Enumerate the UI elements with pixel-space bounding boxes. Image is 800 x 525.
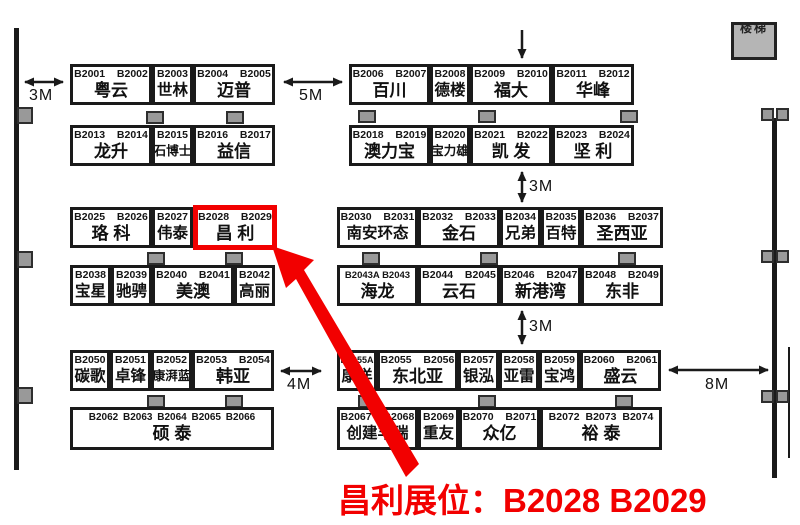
booth-B2043A-B2043: B2043A B2043 海龙 [337,265,418,306]
booth-numbers: B2025 B2026 [74,211,148,224]
booth-B2058: B2058 亚雷 [499,350,539,391]
pillar-icon [358,110,376,123]
booth-numbers: B2055A [340,354,373,367]
pillar-icon [480,252,498,265]
booth-name: 康湃蓝 [153,367,191,385]
booth-B2006-B2007: B2006 B2007 百川 [349,64,430,105]
stairs-box: 楼梯 [731,22,777,60]
right-wall [772,118,777,478]
pillar-icon [618,252,636,265]
booth-B2042: B2042 高丽 [234,265,275,306]
booth-name: 康洋 [341,367,372,386]
booth-name: 硕 泰 [153,424,192,443]
booth-name: 卓锋 [115,367,146,386]
booth-B2003: B2003 世林 [152,64,193,105]
booth-B2015: B2015 石博士 [152,125,193,166]
booth-numbers: B2028 B2029 [198,211,272,224]
booth-numbers: B2050 [75,354,106,367]
booth-B2069: B2069 重友 [418,407,459,450]
pillar-icon [225,252,243,265]
booth-name: 伟泰 [157,224,188,243]
booth-B2009-B2010: B2009 B2010 福大 [470,64,552,105]
booth-numbers: B2034 [505,211,536,224]
booth-B2008: B2008 德楼 [430,64,470,105]
booth-B2035: B2035 百特 [541,207,581,248]
stairs-label: 楼梯 [734,22,774,34]
booth-B2004-B2005: B2004 B2005 迈普 [193,64,275,105]
pillar-icon [776,250,789,263]
pillar-icon [761,108,774,121]
booth-B2053-B2054: B2053 B2054 韩亚 [192,350,274,391]
booth-numbers: B2059 [544,354,575,367]
booth-B2044-B2045: B2044 B2045 云石 [418,265,500,306]
booth-name: 盛云 [604,367,638,386]
distance-label-4m: 4M [287,376,311,394]
booth-name: 圣西亚 [597,224,648,243]
booth-numbers: B2053 B2054 [196,354,270,367]
booth-numbers: B2004 B2005 [197,68,271,81]
pillar-icon [620,110,638,123]
booth-B2059: B2059 宝鸿 [539,350,580,391]
booth-name: 众亿 [483,424,517,443]
booth-numbers: B2001 B2002 [74,68,148,81]
booth-numbers: B2072 B2073 B2074 [549,411,654,424]
booth-numbers: B2013 B2014 [74,129,148,142]
pillar-icon [17,251,33,268]
booth-B2036-B2037: B2036 B2037 圣西亚 [581,207,663,248]
highlight-caption: 昌利展位：B2028 B2029 [338,474,778,522]
booth-B2034: B2034 兄弟 [500,207,541,248]
booth-name: 裕 泰 [582,424,621,443]
booth-name: 德楼 [434,81,465,100]
booth-B2052: B2052 康湃蓝 [151,350,192,391]
booth-B2039: B2039 驰骋 [111,265,152,306]
booth-B2070-B2071: B2070 B2071 众亿 [459,407,540,450]
booth-numbers: B2069 [423,411,454,424]
booth-B2011-B2012: B2011 B2012 华峰 [552,64,634,105]
booth-name: 凯 发 [492,142,531,161]
booth-B2001-B2002: B2001 B2002 粤云 [70,64,152,105]
booth-numbers: B2032 B2033 [422,211,496,224]
pillar-icon [17,107,33,124]
booth-numbers: B2070 B2071 [463,411,537,424]
pillar-icon [226,111,244,124]
booth-numbers: B2008 [435,68,466,81]
booth-B2072-B2074: B2072 B2073 B2074 裕 泰 [540,407,662,450]
booth-name: 海龙 [361,282,395,301]
booth-numbers: B2055 B2056 [381,354,455,367]
distance-label-8m: 8M [705,376,729,394]
booth-name: 坚 利 [574,142,613,161]
booth-name: 银泓 [463,367,494,386]
booth-name: 粤云 [94,81,128,100]
pillar-icon [761,250,774,263]
booth-numbers: B2062 B2063 B2064 B2065 B2066 [89,411,255,424]
booth-name: 宝力雄 [431,142,469,160]
booth-numbers: B2057 [463,354,494,367]
booth-name: 云石 [442,282,476,301]
booth-B2023-B2024: B2023 B2024 坚 利 [552,125,634,166]
booth-numbers: B2036 B2037 [585,211,659,224]
pillar-icon [761,390,774,403]
booth-B2051: B2051 卓锋 [110,350,151,391]
booth-B2027: B2027 伟泰 [152,207,193,248]
pillar-icon [362,252,380,265]
booth-numbers: B2030 B2031 [341,211,415,224]
booth-B2013-B2014: B2013 B2014 龙升 [70,125,152,166]
booth-name: 重友 [423,424,454,443]
booth-name: 东北亚 [392,367,443,386]
distance-label-5m: 5M [299,87,323,105]
pillar-icon [478,110,496,123]
pillar-icon [146,111,164,124]
booth-B2018-B2019: B2018 B2019 澳力宝 [349,125,430,166]
pillar-icon [17,387,33,404]
booth-name: 华峰 [576,81,610,100]
booth-numbers: B2042 [239,269,270,282]
booth-numbers: B2035 [546,211,577,224]
pillar-icon [776,390,789,403]
booth-numbers: B2003 [157,68,188,81]
booth-name: 东非 [605,282,639,301]
pillar-icon [147,252,165,265]
booth-B2050: B2050 碳歌 [70,350,110,391]
booth-name: 创建丰瑞 [346,424,408,443]
booth-B2016-B2017: B2016 B2017 益信 [193,125,275,166]
booth-name: 高丽 [239,282,270,301]
booth-B2038: B2038 宝星 [70,265,111,306]
booth-name: 兄弟 [505,224,536,243]
booth-name: 昌 利 [216,224,255,243]
booth-numbers: B2006 B2007 [353,68,427,81]
booth-numbers: B2027 [157,211,188,224]
booth-name: 驰骋 [116,282,147,301]
distance-label-3m-left: 3M [29,87,53,105]
booth-B2055A: B2055A 康洋 [337,350,377,391]
booth-B2046-B2047: B2046 B2047 新港湾 [500,265,581,306]
booth-name: 迈普 [217,81,251,100]
pillar-icon [776,108,789,121]
booth-name: 百特 [545,224,576,243]
booth-name: 韩亚 [216,367,250,386]
booth-numbers: B2023 B2024 [556,129,630,142]
distance-label-3m-lower: 3M [529,318,553,336]
booth-B2028-B2029-highlighted: B2028 B2029 昌 利 [193,205,277,250]
booth-name: 澳力宝 [364,142,415,161]
booth-numbers: B2020 [435,129,466,142]
booth-B2032-B2033: B2032 B2033 金石 [418,207,500,248]
booth-B2067-B2068: B2067 B2068 创建丰瑞 [337,407,418,450]
booth-numbers: B2058 [504,354,535,367]
booth-numbers: B2043A B2043 [345,269,410,282]
booth-name: 世林 [157,81,188,100]
booth-numbers: B2051 [115,354,146,367]
booth-name: 宝鸿 [544,367,575,386]
booth-B2048-B2049: B2048 B2049 东非 [581,265,663,306]
booth-name: 美澳 [176,282,210,301]
booth-B2025-B2026: B2025 B2026 珞 科 [70,207,152,248]
booth-numbers: B2018 B2019 [353,129,427,142]
booth-B2062-B2066: B2062 B2063 B2064 B2065 B2066 硕 泰 [70,407,274,450]
booth-name: 珞 科 [92,224,131,243]
booth-numbers: B2052 [156,354,187,367]
booth-name: 百川 [373,81,407,100]
booth-name: 南安环态 [346,224,408,243]
booth-numbers: B2067 B2068 [341,411,415,424]
booth-numbers: B2048 B2049 [585,269,659,282]
booth-name: 亚雷 [503,367,534,386]
booth-numbers: B2009 B2010 [474,68,548,81]
booth-name: 石博士 [154,142,192,160]
booth-numbers: B2015 [157,129,188,142]
distance-label-3m-upper: 3M [529,178,553,196]
booth-name: 福大 [494,81,528,100]
booth-numbers: B2044 B2045 [422,269,496,282]
booth-B2030-B2031: B2030 B2031 南安环态 [337,207,418,248]
booth-numbers: B2060 B2061 [584,354,658,367]
booth-numbers: B2040 B2041 [156,269,230,282]
booth-name: 益信 [217,142,251,161]
booth-numbers: B2016 B2017 [197,129,271,142]
booth-name: 碳歌 [74,367,105,386]
booth-B2020: B2020 宝力雄 [430,125,470,166]
booth-name: 龙升 [94,142,128,161]
booth-numbers: B2011 B2012 [556,68,629,81]
booth-numbers: B2021 B2022 [474,129,548,142]
booth-B2060-B2061: B2060 B2061 盛云 [580,350,661,391]
booth-B2055-B2056: B2055 B2056 东北亚 [377,350,458,391]
booth-numbers: B2038 [75,269,106,282]
booth-name: 宝星 [75,282,106,301]
booth-name: 新港湾 [515,282,566,301]
booth-numbers: B2039 [116,269,147,282]
booth-B2021-B2022: B2021 B2022 凯 发 [470,125,552,166]
booth-numbers: B2046 B2047 [504,269,578,282]
booth-B2057: B2057 银泓 [458,350,499,391]
exhibition-floor-plan: 楼梯 B2001 B2002 粤云 B2003 世林 B2004 B2005 迈… [0,0,800,525]
booth-name: 金石 [442,224,476,243]
booth-B2040-B2041: B2040 B2041 美澳 [152,265,234,306]
